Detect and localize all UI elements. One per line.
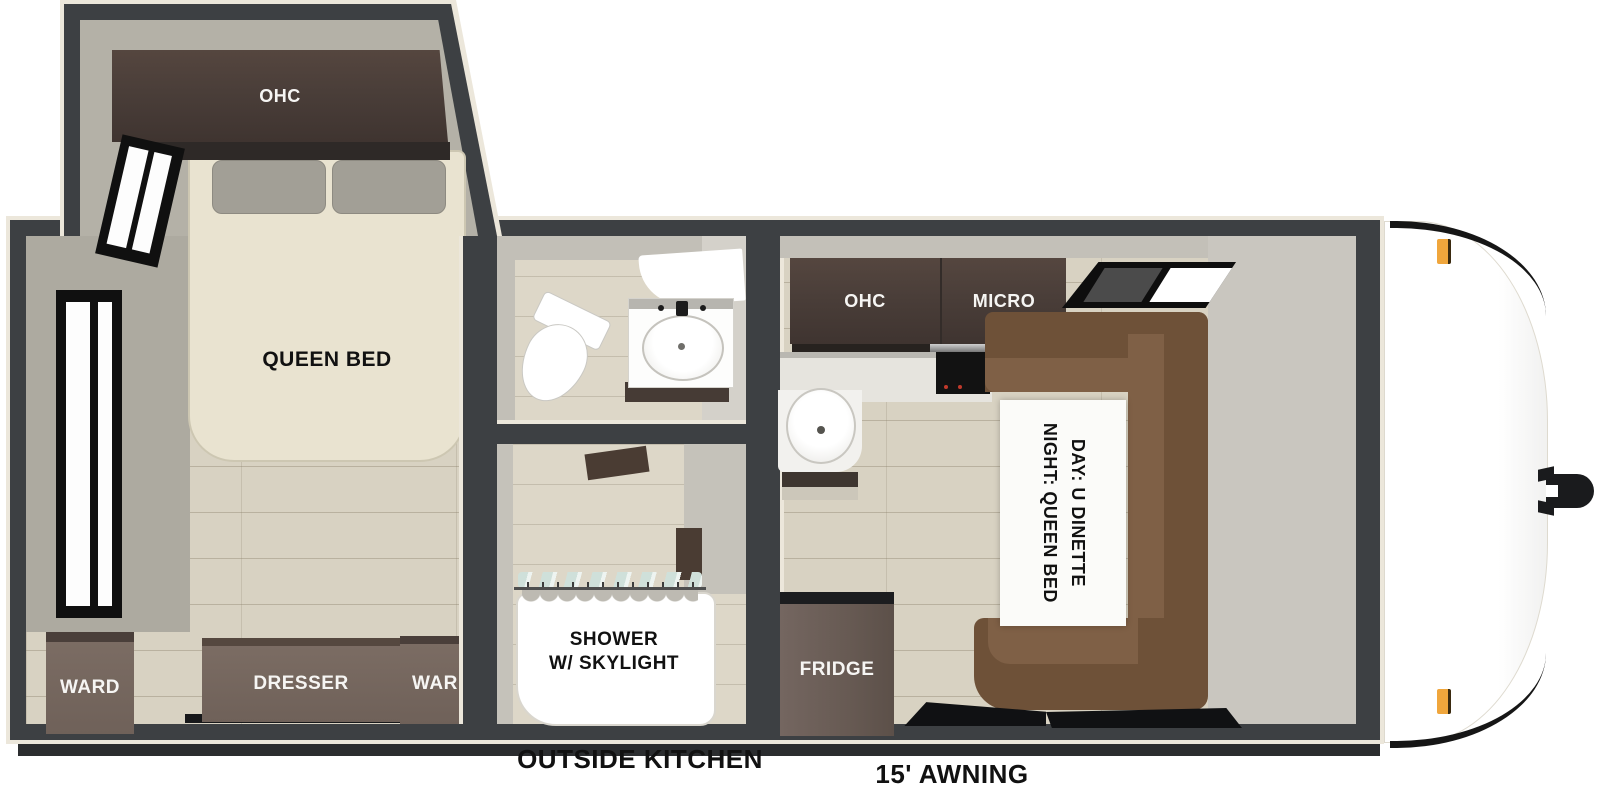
wall-bath-kitchen (746, 236, 780, 724)
overhead-cabinet-bedroom: OHC (112, 50, 448, 142)
marker-light-top-icon (1437, 239, 1451, 264)
kitchen-top-strip (780, 236, 1208, 258)
bath-sink-icon (628, 298, 734, 388)
overhead-cabinet-bedroom-label: OHC (259, 86, 301, 107)
front-passthrough-area (1208, 236, 1356, 724)
bathroom-wall-shade-left (497, 236, 515, 424)
kitchen-sink-icon (786, 388, 856, 464)
pillow-left (212, 160, 326, 214)
wall-bedroom-bath (463, 236, 497, 724)
kitchen-ohc: OHC (790, 258, 940, 344)
queen-bed-label: QUEEN BED (190, 348, 464, 372)
microwave-label: MICRO (973, 291, 1036, 312)
dinette-label-night: NIGHT: QUEEN BED (1035, 423, 1063, 603)
shower-label-line2: W/ SKYLIGHT (516, 652, 712, 676)
dinette-label-text: DAY: U DINETTE NIGHT: QUEEN BED (1035, 423, 1091, 603)
dresser: DRESSER (202, 638, 400, 722)
dinette-label-day: DAY: U DINETTE (1063, 423, 1091, 603)
fridge: FRIDGE (780, 592, 894, 736)
bedroom-window-icon (56, 290, 122, 618)
shower-wall-shade-left (497, 444, 513, 724)
wall-toilet-shower (497, 424, 746, 444)
kitchen-ohc-label: OHC (844, 291, 886, 312)
pillow-right (332, 160, 446, 214)
rv-floorplan-diagram: QUEEN BED OHC WARD DRESSER WARD (0, 0, 1600, 796)
hitch-coupler-icon (1538, 466, 1600, 516)
wardrobe-left: WARD (46, 632, 134, 734)
front-cap-top-trim (1390, 221, 1546, 328)
dinette-label-card: DAY: U DINETTE NIGHT: QUEEN BED (1000, 400, 1126, 626)
shower-label: SHOWER W/ SKYLIGHT (516, 628, 712, 676)
cooktop-icon (936, 352, 990, 394)
shower-curtain-edge (522, 590, 698, 605)
u-dinette-bottom-arm (974, 618, 1208, 710)
awning-label: 15' AWNING (760, 759, 1144, 790)
front-cap-bottom-trim (1390, 641, 1546, 748)
shower-label-line1: SHOWER (516, 628, 712, 652)
kitchen-step-dark (782, 472, 858, 487)
wardrobe-left-label: WARD (60, 677, 120, 699)
fridge-label: FRIDGE (800, 659, 875, 681)
marker-light-bottom-icon (1437, 689, 1451, 714)
kitchen-step-light (782, 487, 858, 500)
dresser-label: DRESSER (253, 673, 348, 695)
